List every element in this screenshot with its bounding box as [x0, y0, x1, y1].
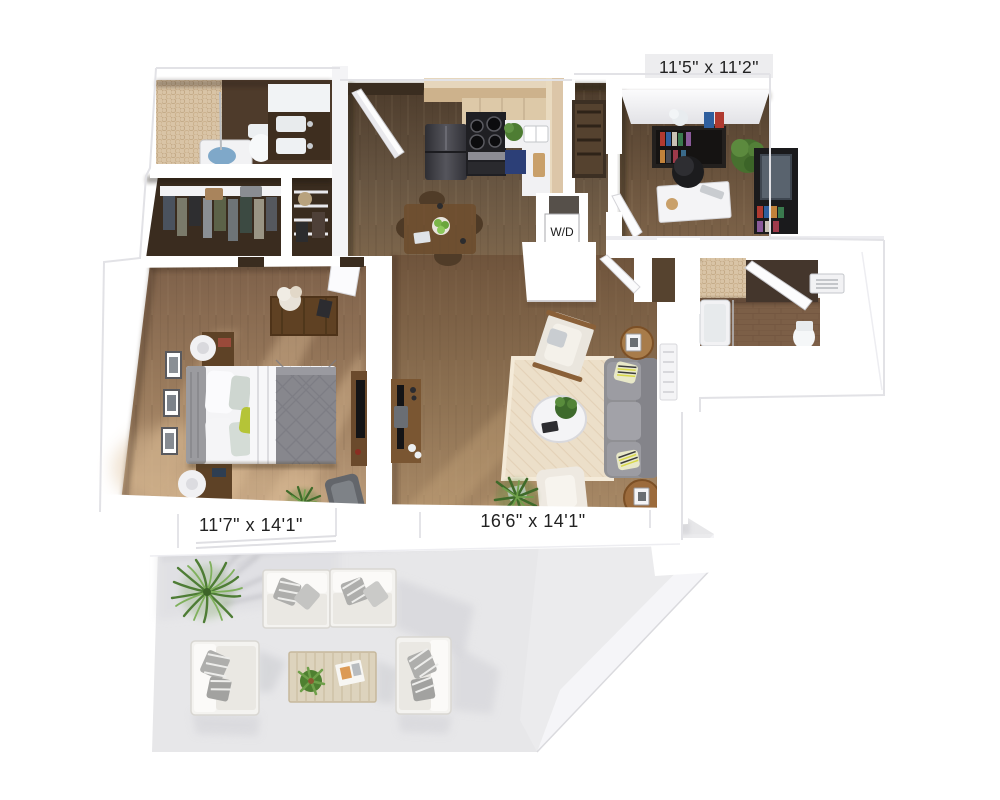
svg-text:11'7" x 14'1": 11'7" x 14'1" [199, 515, 303, 535]
svg-text:W/D: W/D [550, 225, 574, 239]
svg-text:11'5" x 11'2": 11'5" x 11'2" [659, 57, 759, 77]
svg-text:16'6" x 14'1": 16'6" x 14'1" [480, 511, 585, 531]
